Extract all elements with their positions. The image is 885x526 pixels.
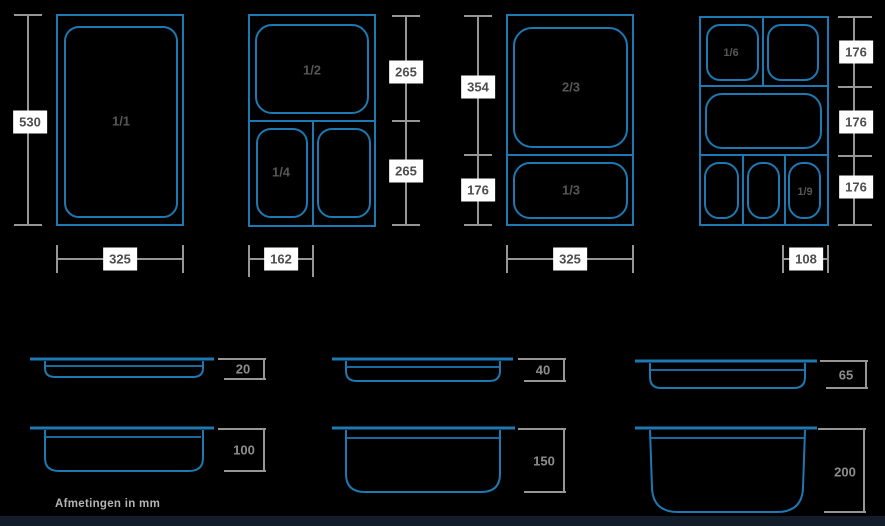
dimension-lines-2-3-1-3 (464, 16, 633, 273)
dim-label-seg2-1-2: 265 (389, 160, 423, 183)
dim-label-row3-1-9: 176 (839, 176, 873, 199)
pan-profile-depth-100 (30, 428, 214, 471)
compartment-label-2-3: 2/3 (562, 80, 580, 95)
pan-top-view-1-2-1-4 (249, 15, 375, 226)
dim-label-height-1-1: 530 (13, 111, 47, 134)
dim-label-seg1-2-3: 354 (461, 76, 495, 99)
dim-label-row1-1-6: 176 (839, 41, 873, 64)
dimension-lines-1-2-1-4 (249, 16, 420, 277)
compartment-label-1-2: 1/2 (303, 63, 321, 78)
compartment-label-1-9: 1/9 (797, 186, 812, 198)
dim-label-width-1-1: 325 (103, 248, 137, 271)
dimension-lines-1-1 (14, 15, 183, 273)
dim-label-seg2-1-3: 176 (461, 179, 495, 202)
depth-label-200: 200 (834, 465, 856, 480)
dim-label-seg1-1-2: 265 (389, 61, 423, 84)
pan-profile-depth-200 (635, 428, 817, 512)
pan-profile-depth-40 (332, 359, 513, 381)
dim-label-width-1-4: 162 (264, 248, 298, 271)
depth-label-65: 65 (839, 368, 853, 383)
depth-label-20: 20 (236, 362, 250, 377)
gastronorm-size-diagram: 530 325 265 265 162 354 176 325 176 176 … (0, 0, 885, 526)
pan-profile-depth-65 (635, 361, 817, 388)
compartment-label-1-6: 1/6 (723, 47, 738, 59)
compartment-label-1-4: 1/4 (272, 165, 290, 180)
depth-label-150: 150 (533, 454, 555, 469)
units-note: Afmetingen in mm (55, 498, 160, 510)
pan-profile-depth-20 (30, 359, 214, 377)
dim-label-row2-1-6: 176 (839, 111, 873, 134)
dim-label-width-1-9: 108 (789, 248, 823, 271)
compartment-label-1-1: 1/1 (112, 114, 130, 129)
dim-label-width-2-3: 325 (553, 248, 587, 271)
pan-profile-depth-150 (332, 428, 515, 492)
compartment-label-1-3: 1/3 (562, 183, 580, 198)
depth-label-100: 100 (233, 443, 255, 458)
depth-label-40: 40 (536, 363, 550, 378)
footer-bar (0, 516, 885, 526)
